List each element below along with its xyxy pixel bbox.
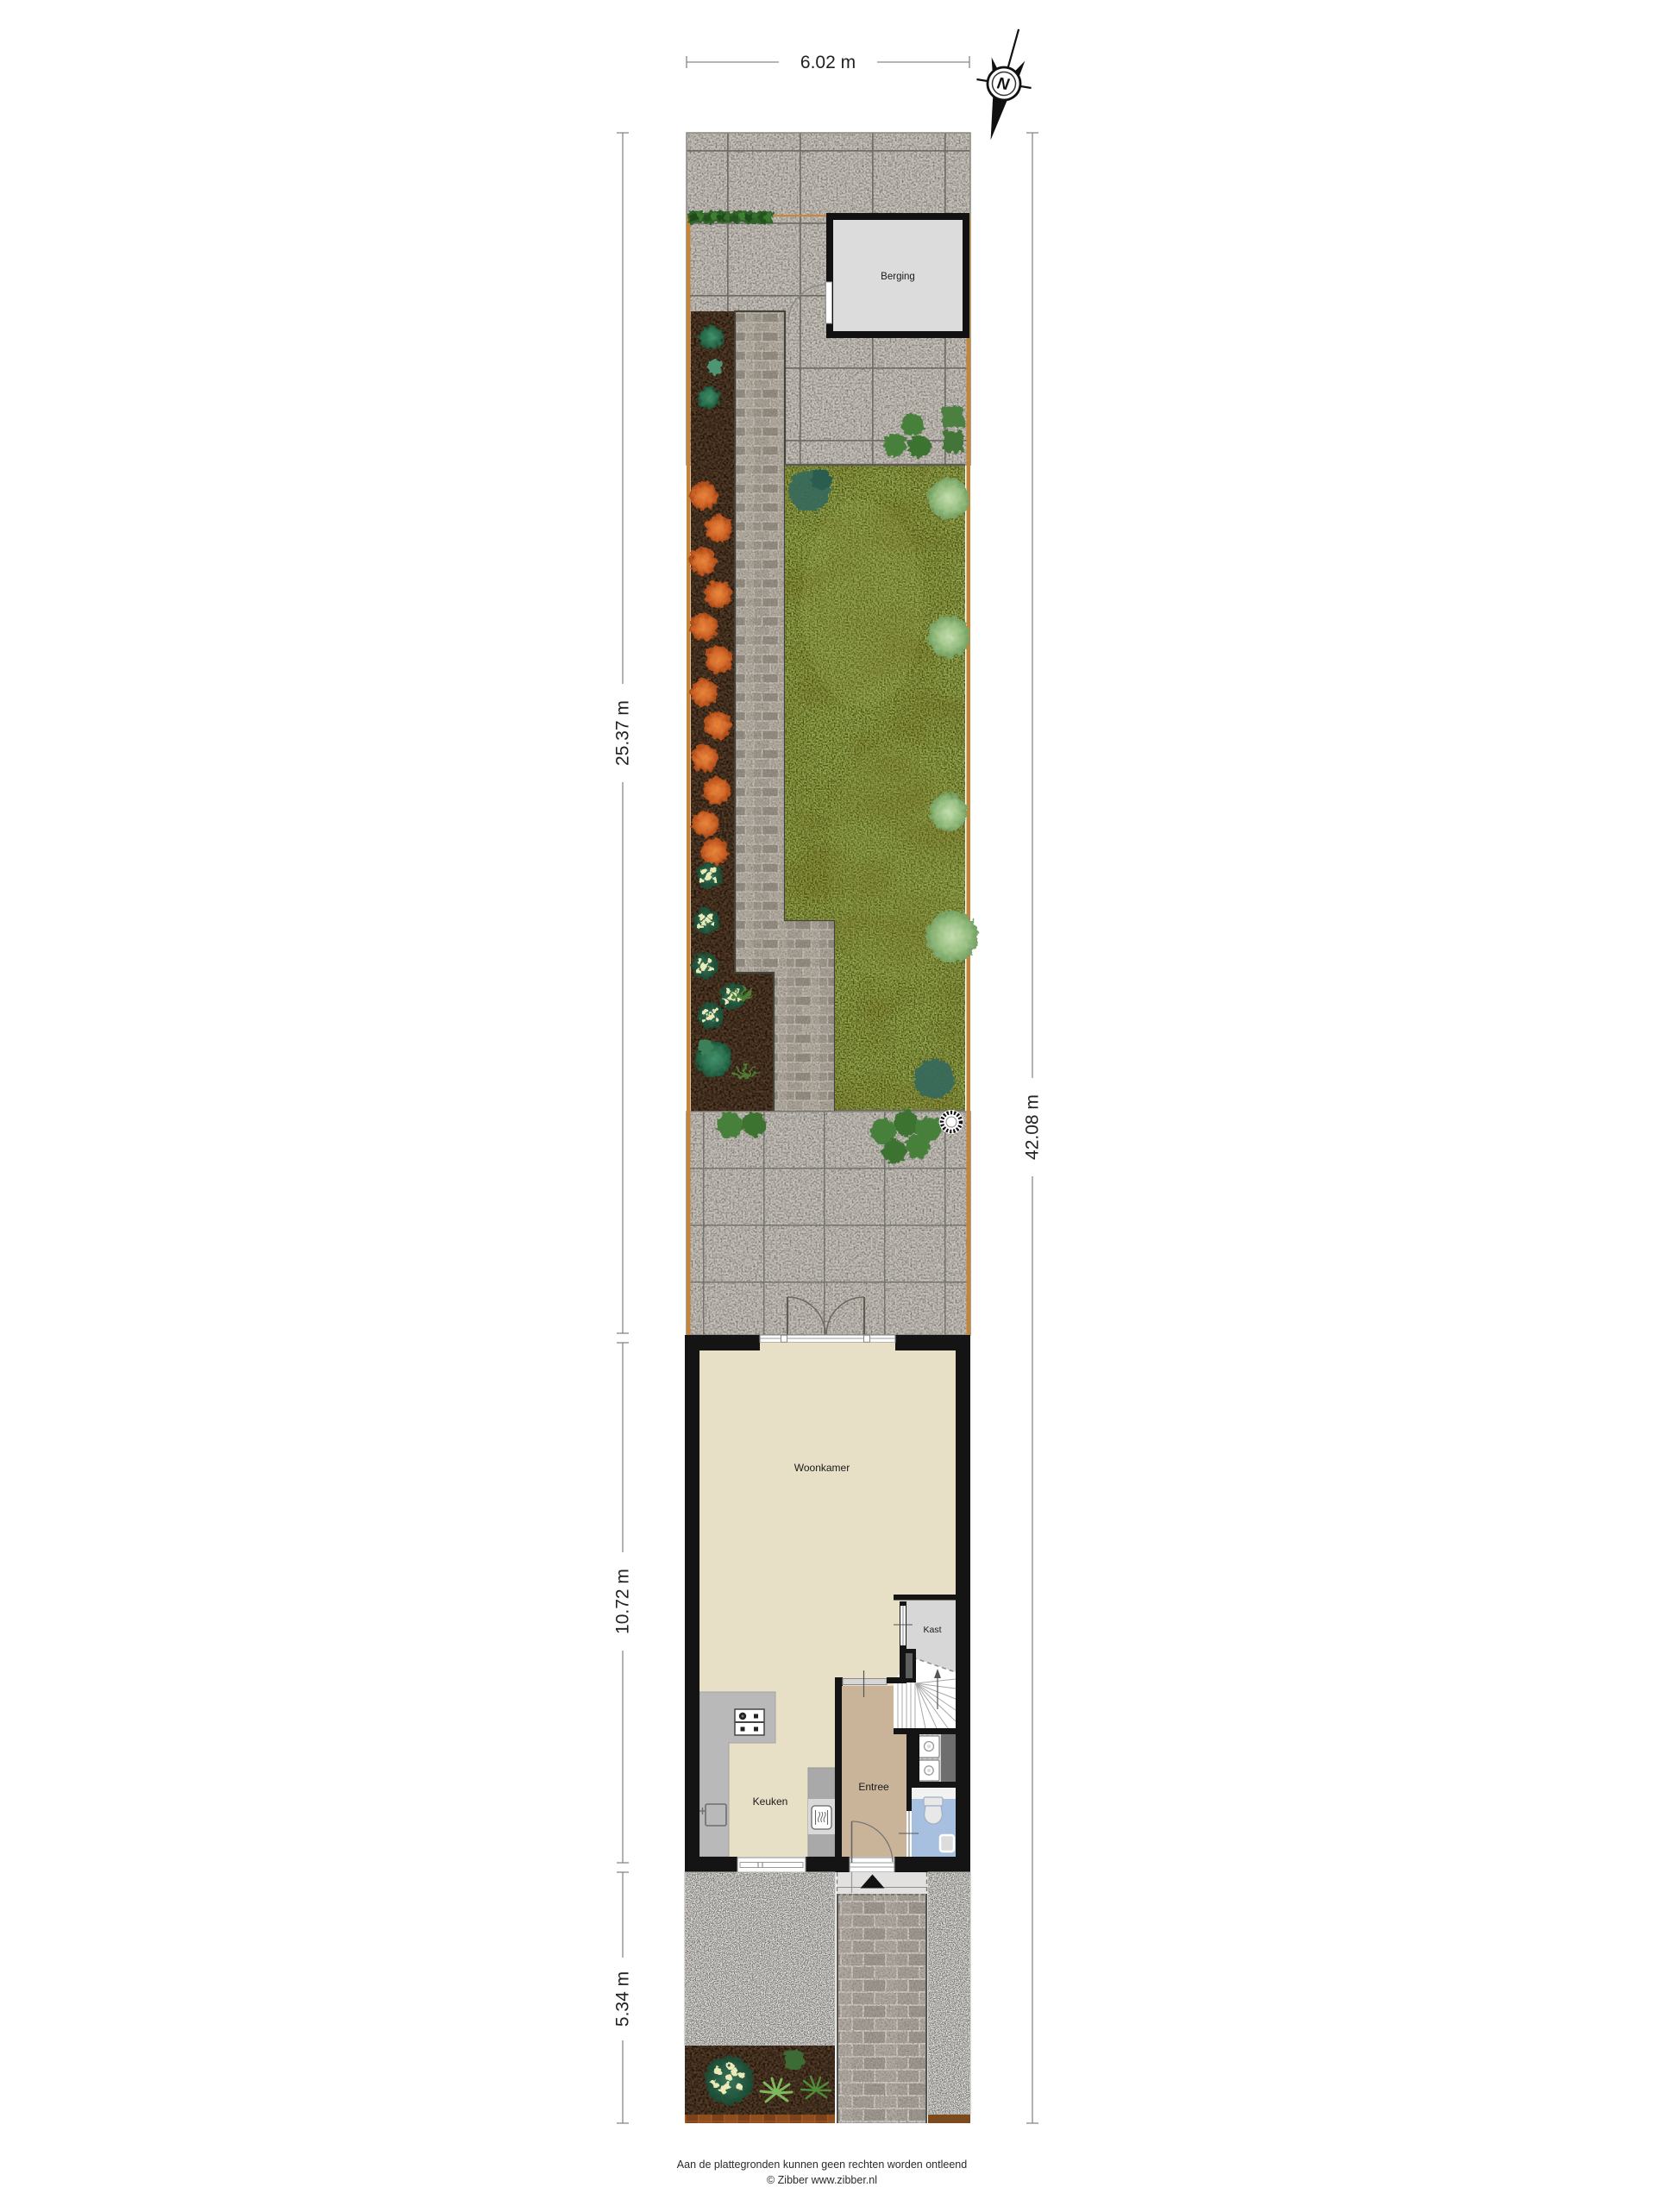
svg-text:Berging: Berging: [881, 272, 915, 282]
svg-text:10.72 m: 10.72 m: [613, 1569, 633, 1634]
svg-text:5.34 m: 5.34 m: [613, 1971, 633, 2027]
svg-text:Keuken: Keuken: [753, 1795, 788, 1808]
svg-text:42.08 m: 42.08 m: [1023, 1094, 1043, 1160]
svg-text:Entree: Entree: [858, 1781, 889, 1793]
svg-text:Kast: Kast: [923, 1625, 941, 1635]
svg-text:25.37 m: 25.37 m: [613, 700, 633, 766]
svg-text:Woonkamer: Woonkamer: [794, 1462, 850, 1474]
svg-text:© Zibber www.zibber.nl: © Zibber www.zibber.nl: [767, 2174, 877, 2186]
svg-text:6.02 m: 6.02 m: [800, 53, 856, 72]
svg-text:Aan de plattegronden kunnen ge: Aan de plattegronden kunnen geen rechten…: [677, 2159, 967, 2171]
